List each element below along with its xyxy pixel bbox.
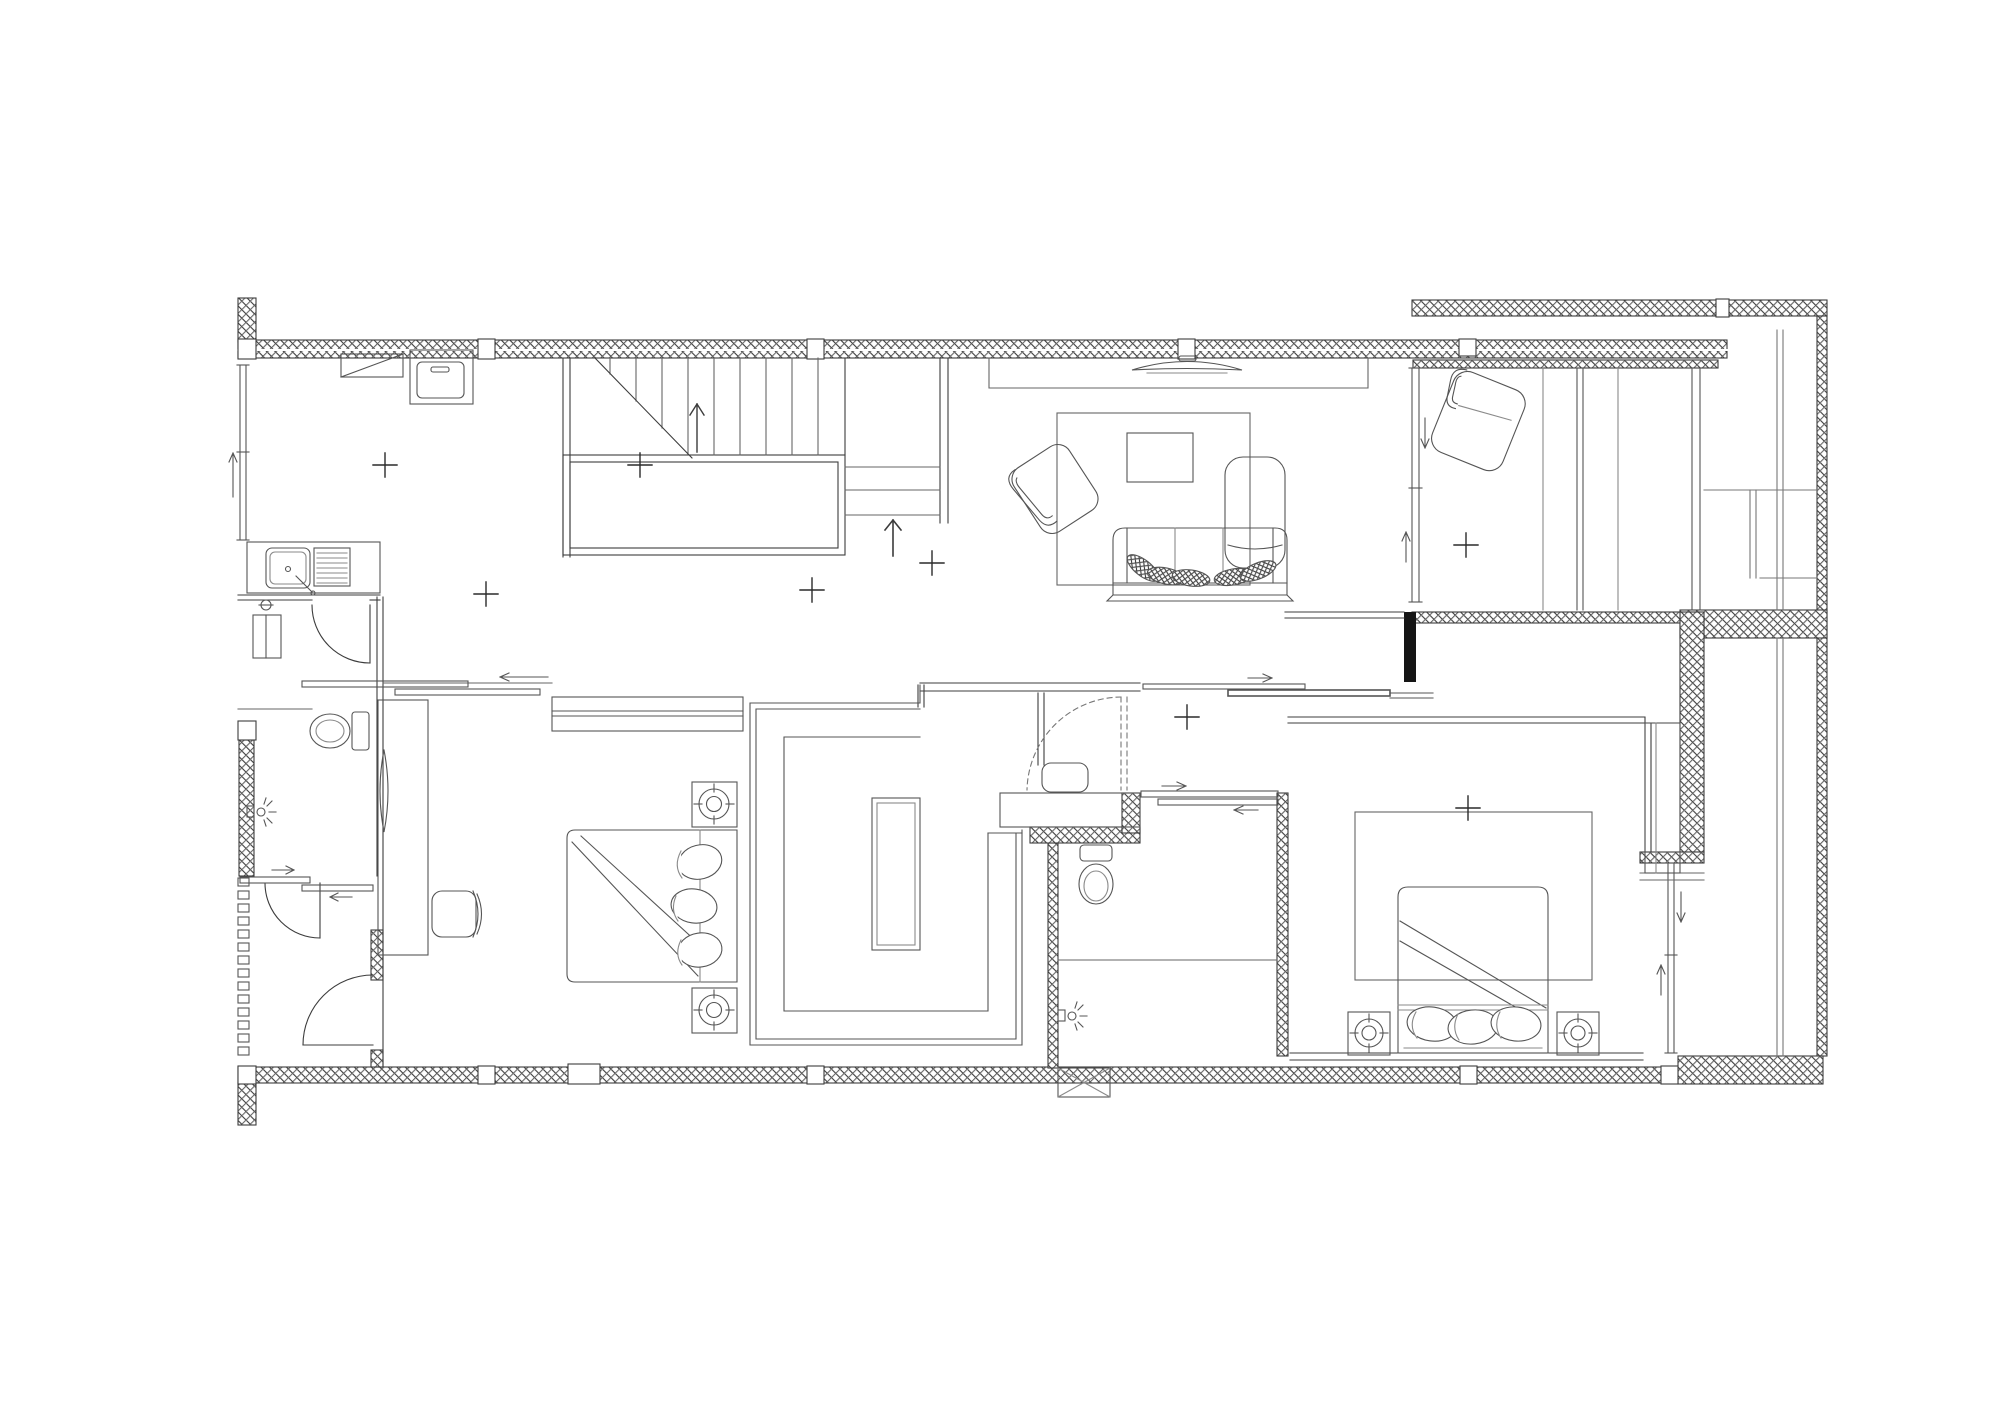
wall-master-right	[1680, 612, 1704, 852]
wall-closet-band	[1412, 612, 1680, 623]
pillows	[669, 840, 726, 970]
wall-strip-b	[371, 1050, 383, 1067]
wall-master-right-cap	[1640, 852, 1704, 863]
balcony-parapet	[1413, 360, 1718, 368]
wall-master-left	[1277, 793, 1288, 1056]
pillar-top-left	[238, 298, 256, 342]
floor-plan-page	[0, 0, 2000, 1413]
wall-bottom-right	[1678, 1056, 1823, 1084]
wall-bath2-left	[1048, 843, 1058, 1068]
solid-column	[1404, 612, 1416, 682]
floor-plan-drawing	[0, 0, 2000, 1413]
wall-right-outer	[1817, 316, 1827, 1056]
wall-top-right-outer	[1412, 300, 1827, 316]
pillar-bottom-left	[238, 1083, 256, 1125]
pillows-master	[1405, 1004, 1543, 1047]
